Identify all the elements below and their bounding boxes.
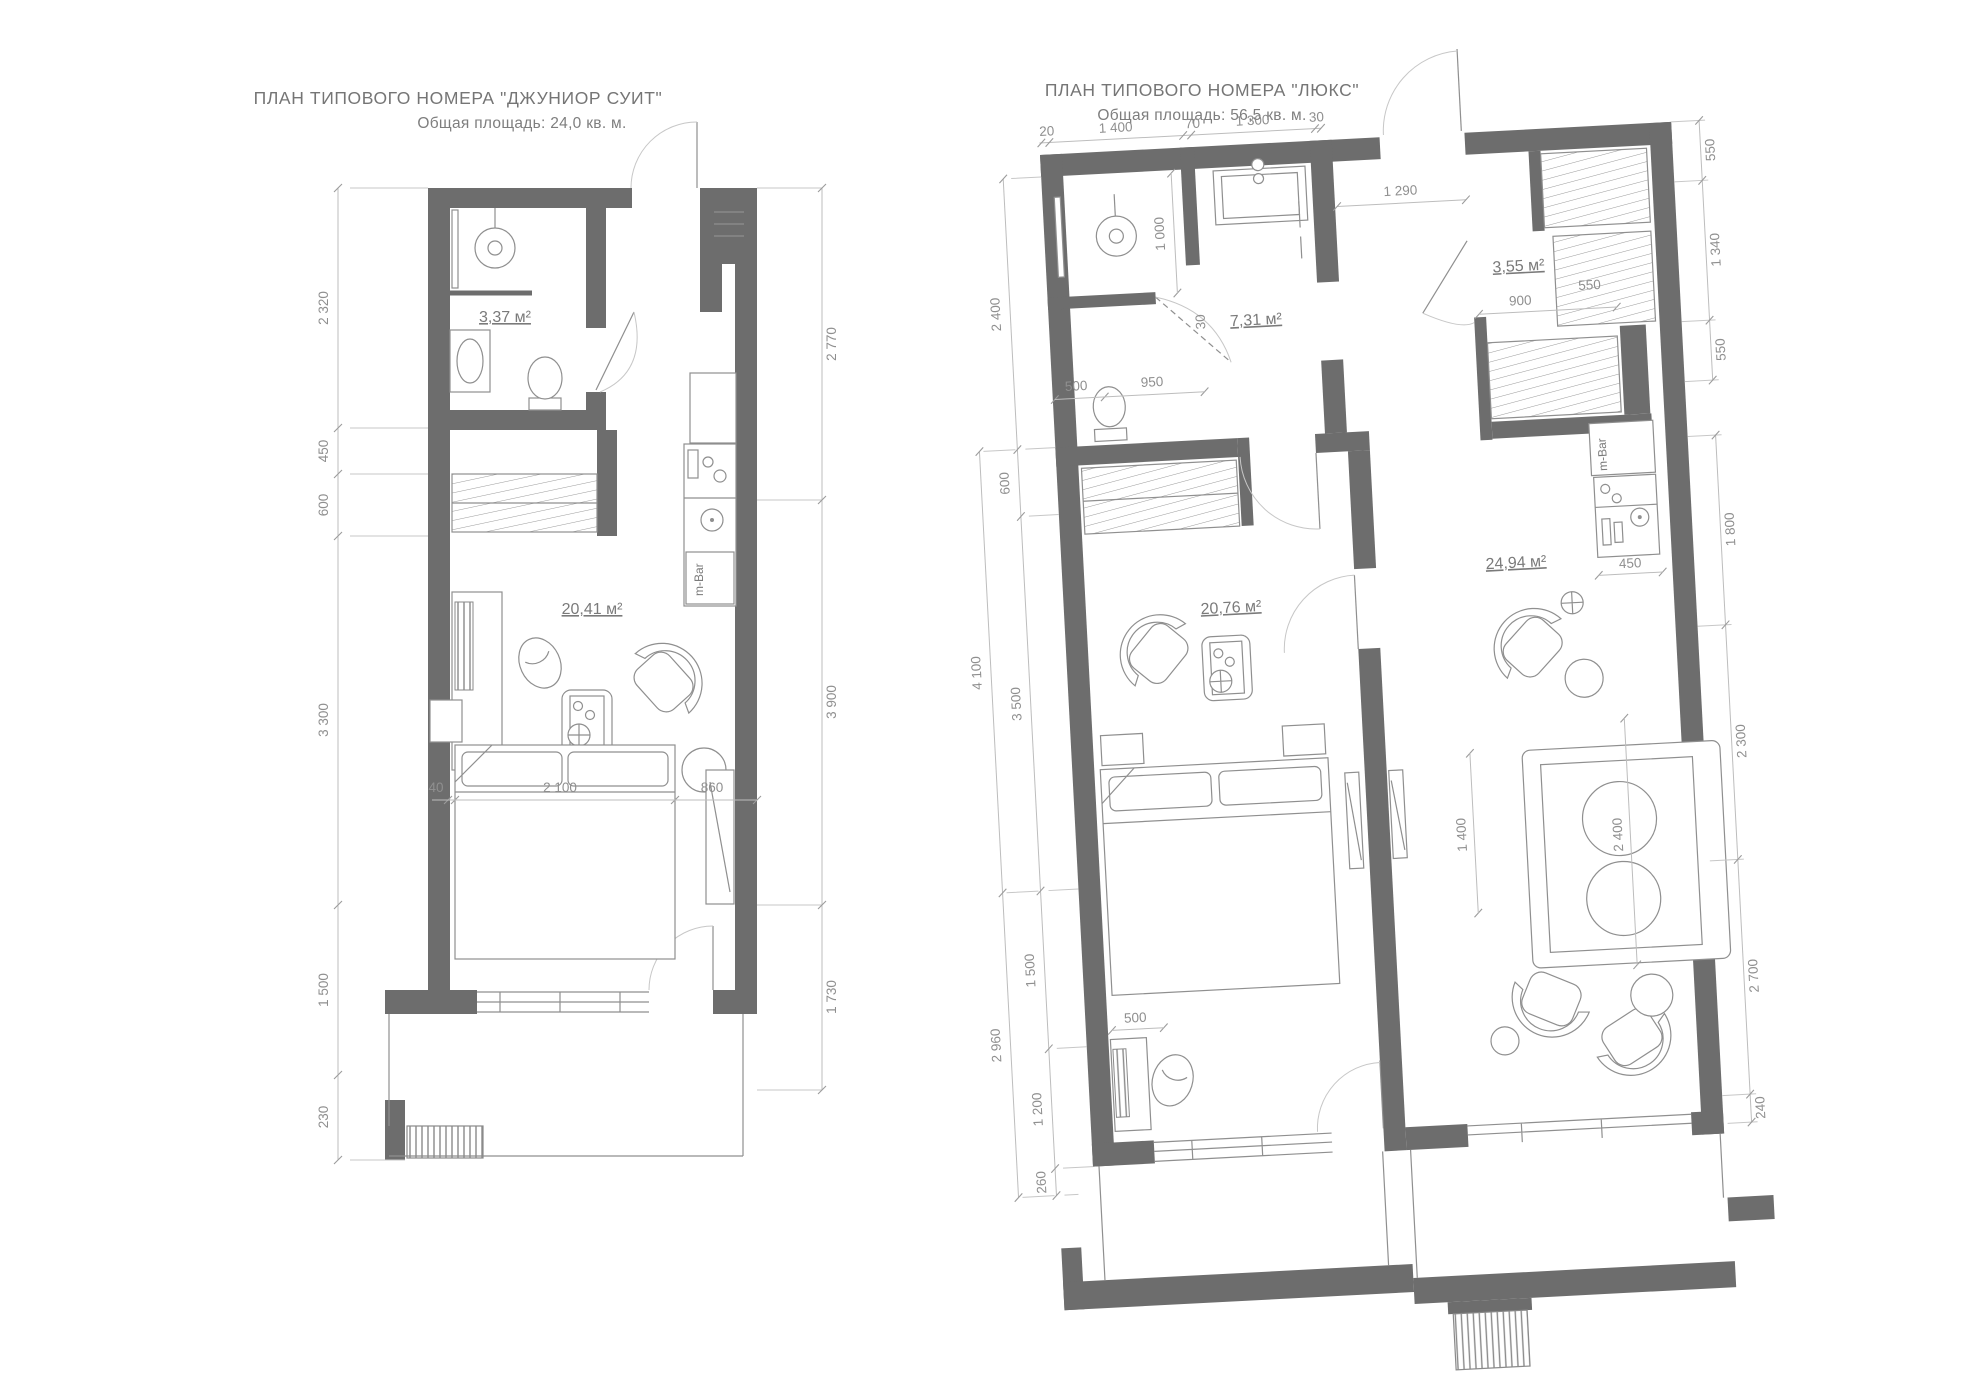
dim-label: 1 400	[1098, 119, 1133, 136]
dim-label: 450	[316, 440, 331, 463]
dim-label: 1 730	[824, 980, 839, 1014]
dim-label: 860	[701, 780, 724, 795]
kitchen-minibar-unit: m-Bar	[684, 373, 736, 606]
minibar-label: m-Bar	[692, 563, 706, 596]
nightstand-icon	[1100, 733, 1144, 765]
dim-label: 900	[1509, 292, 1532, 308]
bed-icon	[455, 745, 675, 959]
dim-label: 1 800	[1722, 512, 1739, 547]
dim-label: 1 300	[1235, 112, 1270, 129]
dim-label: 600	[997, 472, 1013, 495]
dim-label: 30	[1193, 314, 1209, 330]
junior-room-area-label: 20,41 м²	[562, 601, 623, 618]
dim-label: 950	[1140, 374, 1163, 390]
minibar-label: m-Bar	[1595, 438, 1611, 471]
wardrobe-icon	[1487, 336, 1621, 419]
dim-label: 30	[1308, 109, 1324, 125]
side-table-icon	[1490, 1026, 1519, 1055]
dim-label: 2 770	[824, 327, 839, 361]
dim-label: 500	[1064, 378, 1087, 394]
bed-icon	[1100, 758, 1340, 996]
tv-icon	[455, 602, 473, 690]
junior-entry-step-hatch	[407, 1126, 483, 1158]
dim-label: 70	[1185, 116, 1201, 132]
nightstand-icon	[430, 700, 462, 742]
dim-label: 2 300	[1733, 724, 1750, 759]
floorplan-canvas: ПЛАН ТИПОВОГО НОМЕРА "ДЖУНИОР СУИТ" Обща…	[0, 0, 1980, 1400]
junior-title: ПЛАН ТИПОВОГО НОМЕРА "ДЖУНИОР СУИТ"	[254, 88, 663, 108]
dim-label: 1 400	[1453, 818, 1470, 853]
dim-label: 4 100	[968, 656, 985, 691]
dim-label: 600	[316, 494, 331, 517]
lux-living-area-label: 24,94 м²	[1485, 553, 1547, 573]
towel-rail-icon	[452, 210, 458, 288]
junior-furniture: m-Bar	[430, 373, 736, 959]
dim-label: 550	[1702, 138, 1718, 161]
dim-label: 1 000	[1151, 217, 1168, 252]
dim-label: 1 500	[316, 973, 331, 1007]
toilet-icon	[1092, 386, 1127, 442]
desk-chair-icon	[511, 631, 569, 695]
dim-label: 2 400	[1609, 817, 1626, 852]
lux-plan: m-Bar	[938, 36, 1782, 1394]
dim-label: 550	[1578, 277, 1601, 293]
wardrobe-icon	[1541, 148, 1651, 227]
dim-label: 40	[428, 780, 443, 795]
dim-label: 2 400	[987, 297, 1004, 332]
tv-icon	[1345, 772, 1364, 869]
dim-label: 500	[1124, 1010, 1147, 1026]
side-table-icon	[1564, 658, 1604, 698]
dim-label: 2 100	[543, 780, 577, 795]
side-table-icon	[1201, 635, 1252, 701]
lux-bedroom-area-label: 20,76 м²	[1200, 598, 1262, 618]
dim-label: 450	[1619, 555, 1642, 571]
lux-walls	[1004, 120, 1779, 1335]
dim-label: 1 290	[1383, 182, 1418, 199]
lux-title: ПЛАН ТИПОВОГО НОМЕРА "ЛЮКС"	[1045, 80, 1359, 100]
dim-label: 550	[1713, 338, 1729, 361]
kitchen-minibar-unit: m-Bar	[1589, 420, 1660, 557]
dim-label: 1 200	[1029, 1092, 1046, 1127]
dim-label: 3 300	[316, 703, 331, 737]
armchair-icon	[620, 627, 718, 727]
lamp-icon	[1561, 591, 1584, 614]
junior-bathroom-area-label: 3,37 м²	[479, 309, 532, 326]
desk-icon	[1110, 1038, 1151, 1132]
shower-icon	[1095, 215, 1137, 257]
armchair-icon	[1104, 598, 1201, 698]
tv-icon	[1389, 770, 1408, 859]
lamp-icon	[568, 724, 590, 746]
dim-label: 2 700	[1745, 959, 1762, 994]
dim-label: 20	[1039, 123, 1055, 139]
dim-label: 2 320	[316, 291, 331, 325]
dim-label: 1 500	[1022, 953, 1039, 988]
lamp-icon	[1209, 670, 1232, 693]
dim-label: 3 500	[1008, 687, 1025, 722]
lux-wardrobe-area-label: 3,55 м²	[1492, 257, 1545, 277]
desk-chair-icon	[1146, 1050, 1199, 1111]
dim-label: 230	[316, 1106, 331, 1129]
floorplan-sheet: ПЛАН ТИПОВОГО НОМЕРА "ДЖУНИОР СУИТ" Обща…	[0, 0, 1980, 1400]
lux-bathroom-area-label: 7,31 м²	[1230, 311, 1283, 331]
dim-label: 1 340	[1707, 233, 1724, 268]
junior-suite-plan: m-Bar 2 320	[316, 122, 839, 1164]
lux-entry-step-hatch	[1453, 1310, 1530, 1370]
armchair-icon	[1478, 592, 1576, 692]
junior-subtitle: Общая площадь: 24,0 кв. м.	[417, 115, 626, 132]
sofa-icon	[1522, 740, 1731, 968]
wardrobe-icon	[1553, 231, 1656, 326]
junior-dimensions: 2 320 450 600 3 300 1 500 230 2 770 3 90…	[316, 184, 839, 1164]
nightstand-icon	[1282, 724, 1326, 756]
toilet-icon	[528, 357, 562, 410]
shower-icon	[475, 228, 515, 268]
dim-label: 3 900	[824, 685, 839, 719]
dim-label: 260	[1033, 1171, 1049, 1194]
dim-label: 240	[1752, 1096, 1768, 1119]
armchair-icon	[1586, 997, 1686, 1091]
dim-label: 2 960	[988, 1028, 1005, 1063]
